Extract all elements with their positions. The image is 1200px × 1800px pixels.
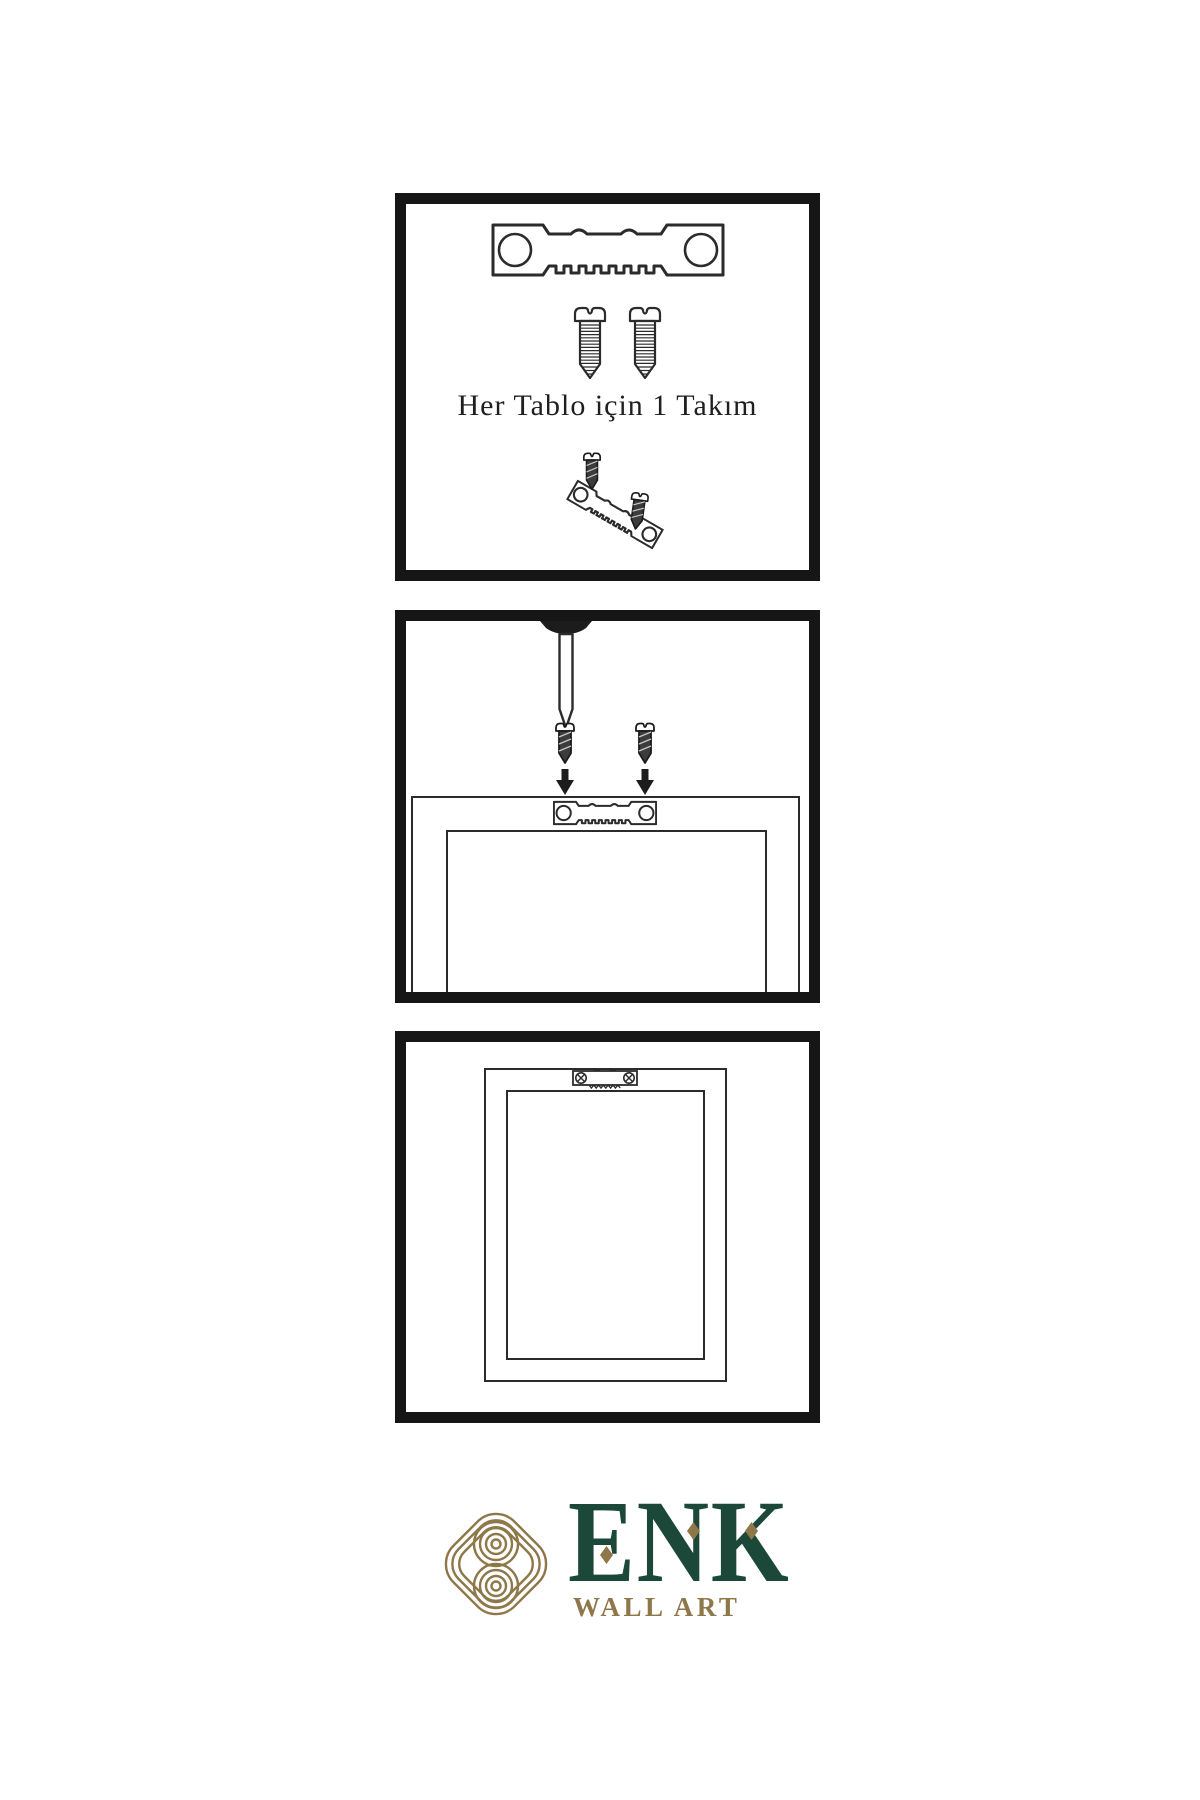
dark-screw-icon (582, 451, 602, 491)
screw-icon (627, 305, 663, 381)
frame-back-inner-edge (446, 830, 767, 992)
screw-icon (572, 305, 608, 381)
panel-wall-mounting (395, 610, 820, 1003)
mounted-sawtooth-hanger-icon (572, 1069, 638, 1089)
dark-screw-icon (554, 721, 576, 765)
enk-knot-logo-mark (438, 1502, 554, 1626)
brand-logo: ENK WALL ART (438, 1500, 818, 1640)
panel-mounted-frame (395, 1031, 820, 1423)
hanger-assembly-diagram (556, 447, 681, 557)
down-arrow-icon (556, 769, 574, 795)
kit-caption: Her Tablo için 1 Takım (406, 389, 809, 423)
brand-name: ENK (568, 1483, 790, 1601)
dark-screw-icon (634, 721, 656, 765)
wall-nail-icon (540, 621, 592, 731)
product-instruction-image: { "meta": { "type": "wall-art-hanging-in… (0, 0, 1200, 1800)
down-arrow-icon (636, 769, 654, 795)
brand-subtitle: WALL ART (573, 1594, 740, 1621)
tilted-sawtooth-hanger-icon (566, 480, 664, 550)
sawtooth-hanger-icon (553, 800, 657, 826)
panel-kit-contents: Her Tablo için 1 Takım (395, 193, 820, 581)
sawtooth-hanger-icon (491, 223, 725, 277)
frame-back-inner-edge (506, 1090, 705, 1360)
